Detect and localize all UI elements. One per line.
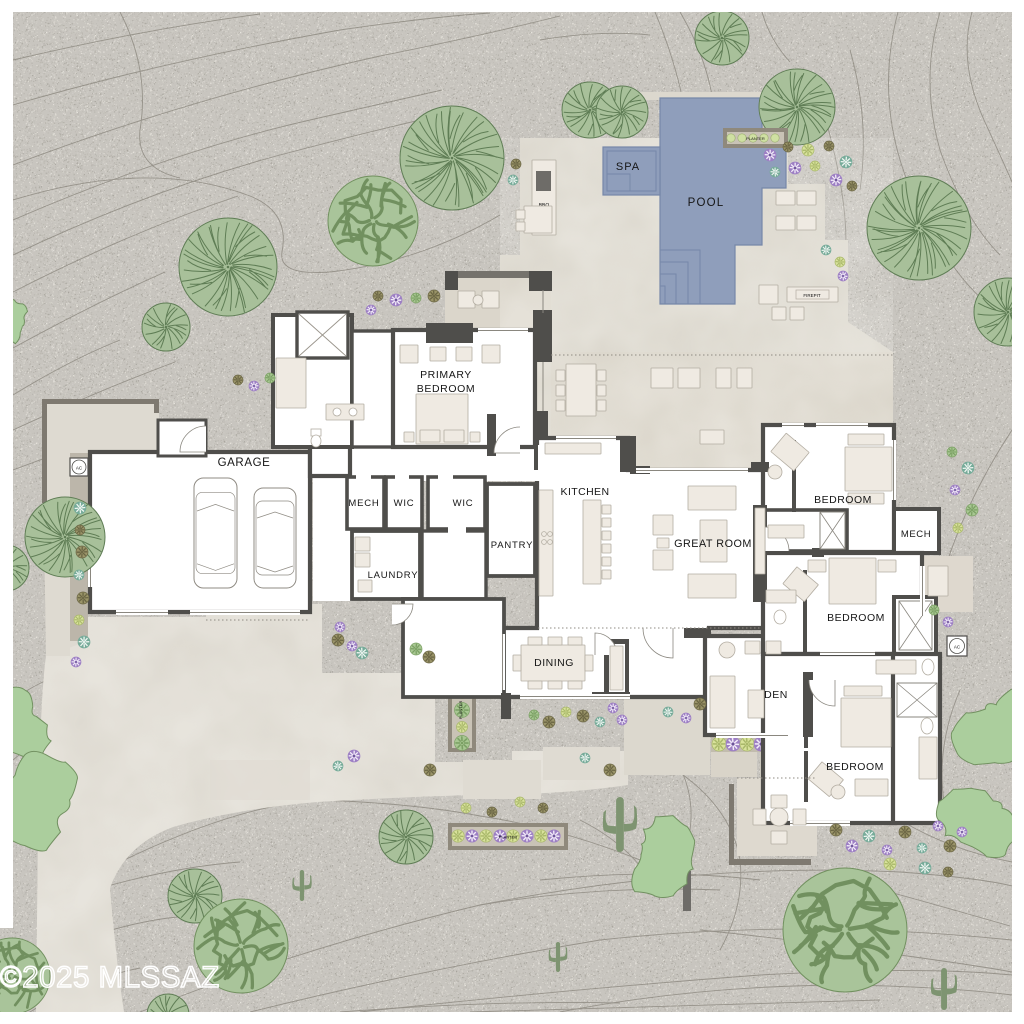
svg-text:DINING: DINING [534, 657, 574, 669]
svg-text:BEDROOM: BEDROOM [826, 761, 884, 773]
svg-text:MECH: MECH [348, 498, 379, 509]
svg-text:LAUNDRY: LAUNDRY [368, 570, 419, 581]
svg-text:GARAGE: GARAGE [218, 457, 271, 469]
svg-text:DEN: DEN [764, 689, 788, 701]
svg-text:©2025 MLSSAZ: ©2025 MLSSAZ [0, 961, 220, 994]
svg-text:PLANTER: PLANTER [746, 136, 765, 141]
svg-text:GREAT ROOM: GREAT ROOM [674, 538, 752, 550]
svg-text:PANTRY: PANTRY [491, 540, 533, 551]
svg-text:PLANTER: PLANTER [458, 701, 463, 720]
svg-text:MECH: MECH [901, 529, 931, 540]
svg-text:KITCHEN: KITCHEN [561, 486, 610, 498]
svg-text:WIC: WIC [394, 498, 415, 509]
svg-text:BEDROOM: BEDROOM [417, 383, 475, 395]
svg-text:PLANTER: PLANTER [499, 835, 518, 840]
svg-text:PRIMARY: PRIMARY [420, 369, 472, 381]
svg-text:AC: AC [954, 645, 961, 650]
svg-text:POOL: POOL [688, 197, 725, 209]
svg-text:FIREPIT: FIREPIT [803, 293, 821, 298]
svg-text:SPA: SPA [616, 161, 640, 173]
svg-text:WIC: WIC [453, 498, 474, 509]
svg-text:BEDROOM: BEDROOM [827, 612, 885, 624]
svg-text:AC: AC [76, 466, 83, 471]
svg-text:BEDROOM: BEDROOM [814, 494, 872, 506]
